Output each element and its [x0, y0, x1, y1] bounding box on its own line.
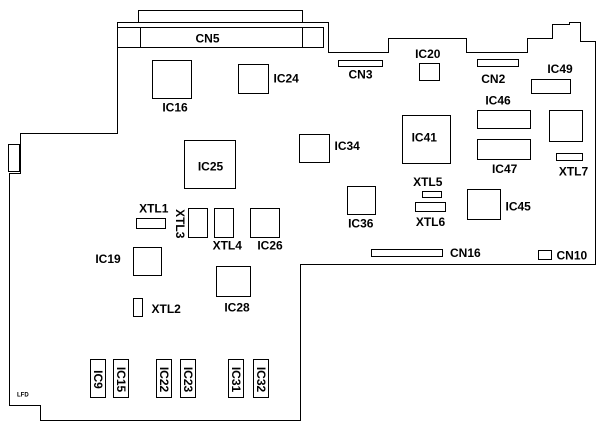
svg-text:IC47: IC47 [492, 162, 518, 176]
svg-text:IC41: IC41 [412, 131, 438, 145]
svg-text:IC19: IC19 [95, 252, 121, 266]
svg-text:IC45: IC45 [506, 200, 532, 214]
svg-text:XTL3: XTL3 [173, 209, 187, 239]
svg-text:IC16: IC16 [162, 101, 188, 115]
svg-text:XTL1: XTL1 [139, 202, 169, 216]
svg-text:XTL4: XTL4 [213, 239, 243, 253]
svg-text:IC32: IC32 [254, 367, 268, 393]
svg-text:CN16: CN16 [450, 246, 481, 260]
svg-text:IC9: IC9 [91, 370, 105, 389]
svg-text:IC49: IC49 [547, 62, 573, 76]
svg-text:IC36: IC36 [348, 217, 374, 231]
svg-text:CN3: CN3 [348, 68, 372, 82]
svg-text:CN2: CN2 [481, 72, 505, 86]
svg-text:IC23: IC23 [181, 367, 195, 393]
svg-text:IC25: IC25 [198, 160, 224, 174]
svg-text:XTL6: XTL6 [416, 215, 446, 229]
svg-text:IC20: IC20 [415, 47, 441, 61]
svg-text:CN10: CN10 [557, 249, 588, 263]
svg-text:IC15: IC15 [114, 367, 128, 393]
svg-text:IC31: IC31 [229, 367, 243, 393]
svg-text:IC24: IC24 [274, 72, 300, 86]
svg-text:XTL7: XTL7 [559, 165, 589, 179]
svg-text:LFD: LFD [17, 393, 29, 399]
svg-text:CN5: CN5 [195, 32, 219, 46]
svg-text:IC34: IC34 [335, 139, 361, 153]
svg-text:XTL5: XTL5 [413, 175, 443, 189]
svg-text:IC22: IC22 [157, 367, 171, 393]
svg-text:IC28: IC28 [224, 301, 250, 315]
svg-text:IC26: IC26 [257, 239, 283, 253]
svg-text:XTL2: XTL2 [152, 302, 182, 316]
svg-text:IC46: IC46 [485, 94, 511, 108]
